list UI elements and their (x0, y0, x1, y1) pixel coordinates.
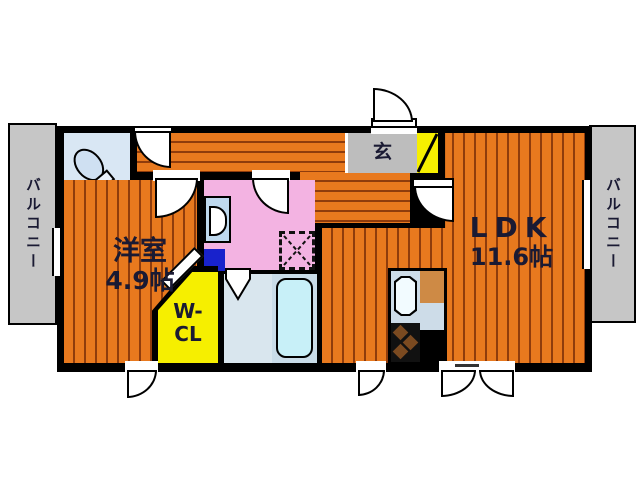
counter-tan (420, 271, 444, 303)
balcony-left-label: バルコニー (25, 177, 40, 272)
stove-icon (391, 323, 420, 362)
counter-side (420, 303, 444, 330)
balcony-right-label: バルコニー (605, 177, 620, 272)
shoe-cabinet-diagonal (417, 133, 438, 173)
ldk-bottom-door-arc-right (479, 370, 514, 397)
bathroom (224, 274, 317, 363)
window-west (52, 228, 62, 276)
washing-machine-icon (279, 231, 315, 270)
folding-door-icon (225, 268, 253, 302)
window-east (582, 180, 592, 269)
balcony-right: バルコニー (589, 125, 636, 323)
hallway-lower (300, 172, 410, 223)
shoe-cabinet (417, 133, 438, 173)
ldk-bottom-door-arc-left (441, 370, 476, 397)
ldk-label: LDK 11.6帖 (443, 212, 580, 272)
ldk-bottom-door-line (455, 364, 479, 367)
washbasin-icon (204, 196, 231, 243)
western-room-label: 洋室 4.9帖 (78, 236, 202, 296)
entrance-label: 玄 (373, 142, 392, 164)
west-bottom-door-arc (127, 370, 157, 398)
bath-bottom-door-arc (358, 370, 385, 396)
balcony-left: バルコニー (8, 123, 57, 325)
entrance-hall: 玄 (345, 133, 417, 173)
kitchen-unit (388, 268, 447, 365)
sink-icon (394, 276, 417, 316)
bathtub-icon (276, 278, 313, 358)
floor-plan: バルコニー バルコニー 玄 (0, 0, 640, 480)
wcl-label: W- CL (160, 300, 216, 346)
entrance-door-arc (373, 88, 413, 122)
